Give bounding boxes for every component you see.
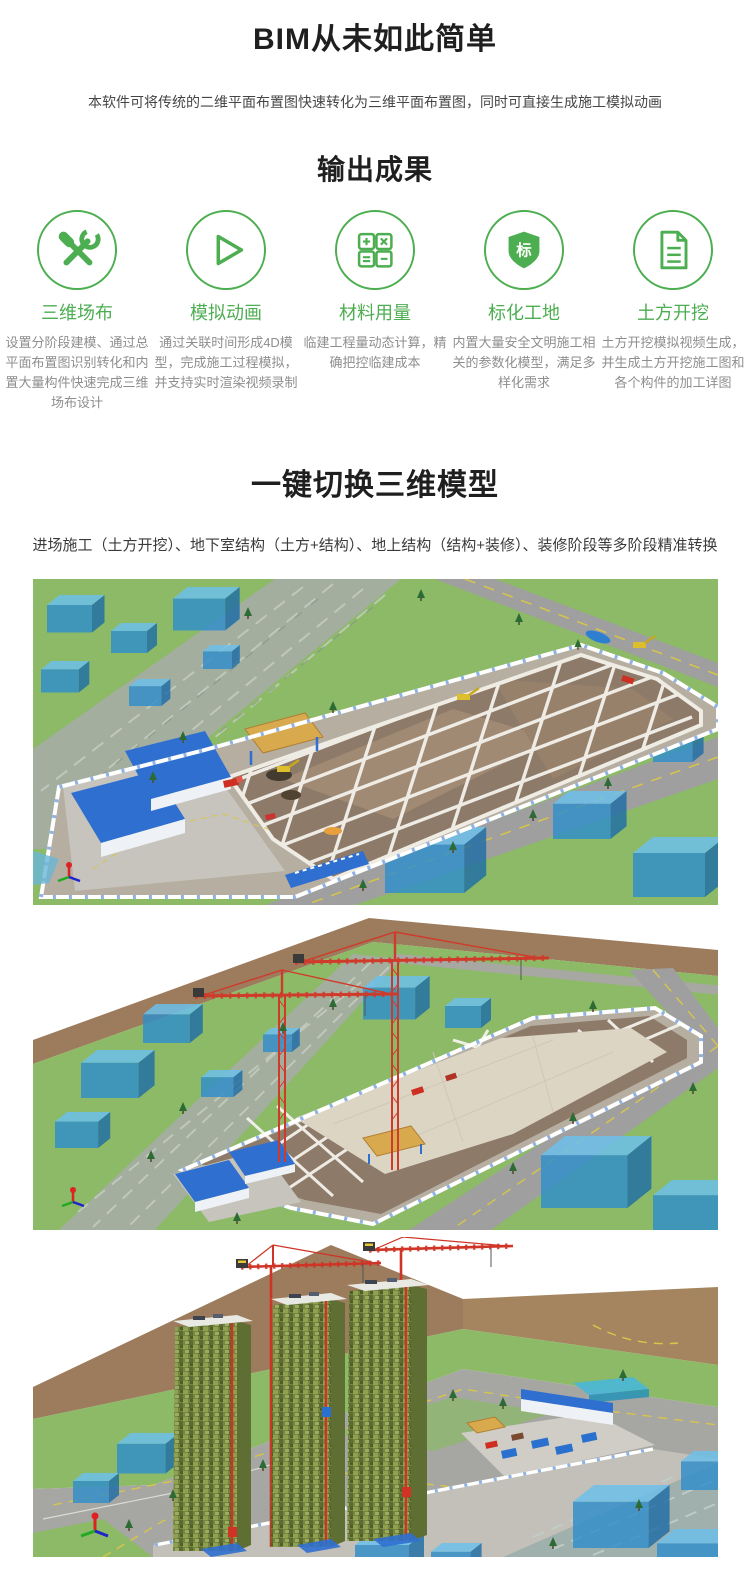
feature-desc: 内置大量安全文明施工相关的参数化模型，满足多样化需求 (452, 333, 596, 393)
document-icon (633, 210, 713, 290)
feature-3d-site: 三维场布 设置分阶段建模、通过总平面布置图识别转化和内置大量构件快速完成三维场布… (5, 210, 149, 414)
feature-title: 模拟动画 (154, 299, 298, 325)
feature-desc: 通过关联时间形成4D模型，完成施工过程模拟，并支持实时渲染视频录制 (154, 333, 298, 393)
page-subtitle: 本软件可将传统的二维平面布置图快速转化为三维平面布置图，同时可直接生成施工模拟动… (20, 92, 730, 112)
tools-icon (37, 210, 117, 290)
feature-title: 材料用量 (303, 299, 447, 325)
page-title: BIM从未如此简单 (0, 0, 750, 58)
render-stage-2-basement (33, 912, 718, 1230)
feature-title: 标化工地 (452, 299, 596, 325)
tank (324, 827, 342, 835)
feature-desc: 临建工程量动态计算，精确把控临建成本 (303, 333, 447, 373)
switcher-subtitle: 进场施工（土方开挖）、地下室结构（土方+结构）、地上结构（结构+装修）、装修阶段… (10, 534, 740, 555)
feature-simulation: 模拟动画 通过关联时间形成4D模型，完成施工过程模拟，并支持实时渲染视频录制 (154, 210, 298, 414)
feature-earthwork: 土方开挖 土方开挖模拟视频生成，并生成土方开挖施工图和各个构件的加工详图 (601, 210, 745, 414)
feature-desc: 设置分阶段建模、通过总平面布置图识别转化和内置大量构件快速完成三维场布设计 (5, 333, 149, 414)
feature-title: 土方开挖 (601, 299, 745, 325)
towers (173, 1278, 429, 1557)
feature-standard-site: 标 标化工地 内置大量安全文明施工相关的参数化模型，满足多样化需求 (452, 210, 596, 414)
svg-text:标: 标 (515, 241, 532, 259)
tower-1 (173, 1314, 253, 1557)
render-stage-1-excavation (33, 579, 718, 905)
feature-title: 三维场布 (5, 299, 149, 325)
outputs-feature-row: 三维场布 设置分阶段建模、通过总平面布置图识别转化和内置大量构件快速完成三维场布… (0, 210, 750, 414)
tower-3 (347, 1278, 429, 1547)
feature-desc: 土方开挖模拟视频生成，并生成土方开挖施工图和各个构件的加工详图 (601, 333, 745, 393)
badge-shield-icon: 标 (484, 210, 564, 290)
feature-material: 材料用量 临建工程量动态计算，精确把控临建成本 (303, 210, 447, 414)
tower-2 (271, 1292, 347, 1553)
render-stage-3-superstructure (33, 1237, 718, 1557)
outputs-section-title: 输出成果 (0, 148, 750, 188)
play-icon (186, 210, 266, 290)
calculator-icon (335, 210, 415, 290)
page: BIM从未如此简单 本软件可将传统的二维平面布置图快速转化为三维平面布置图，同时… (0, 0, 750, 1574)
switcher-section-title: 一键切换三维模型 (0, 460, 750, 504)
render-gallery (0, 579, 750, 1574)
